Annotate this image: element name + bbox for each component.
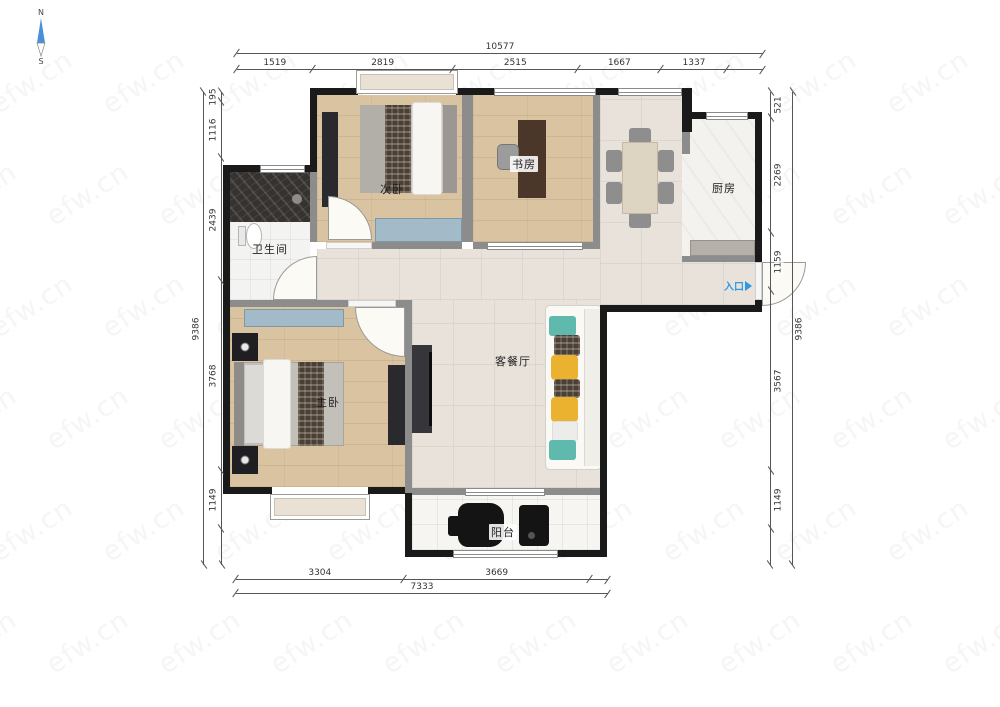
watermark: efw.cn: [0, 381, 23, 457]
dim-bottom-total: 7333: [236, 580, 608, 594]
dim-segment: 521: [770, 92, 786, 118]
dim-left-segments: 1951116243937681149: [206, 92, 222, 565]
watermark: efw.cn: [153, 0, 247, 8]
dim-value: 2515: [503, 59, 528, 68]
watermark: efw.cn: [937, 605, 1000, 681]
watermark: efw.cn: [0, 157, 23, 233]
wall: [462, 95, 473, 242]
dim-segment: 2269: [770, 118, 786, 232]
watermark: efw.cn: [97, 269, 191, 345]
dim-value: 1149: [209, 487, 218, 512]
watermark: efw.cn: [881, 45, 975, 121]
dim-segment: [770, 529, 786, 565]
sofa-pillow-yellow: [551, 355, 578, 380]
dim-value: 3304: [307, 569, 332, 578]
dim-value: 1667: [607, 59, 632, 68]
dresser-blue: [375, 218, 462, 242]
watermark: efw.cn: [265, 605, 359, 681]
watermark: efw.cn: [265, 0, 359, 8]
dining-chair: [606, 150, 622, 172]
bay-window: [270, 494, 370, 520]
wall: [690, 112, 706, 119]
dim-value: 3768: [209, 363, 218, 388]
wall: [682, 88, 692, 132]
window: [260, 165, 305, 173]
dim-segment: 1159: [770, 233, 786, 291]
dim-segment: 1667: [578, 54, 661, 70]
dim-value: 3567: [774, 368, 783, 393]
sofa-pillow-pattern: [554, 379, 580, 398]
bed-headboard: [234, 362, 244, 446]
wall: [310, 88, 358, 95]
watermark: efw.cn: [601, 605, 695, 681]
dim-segment: 1337: [661, 54, 727, 70]
entrance-marker: 入口: [724, 278, 752, 293]
dim-top-segments: 15192819251516671337: [237, 54, 763, 70]
wall: [755, 112, 762, 264]
dining-chair: [629, 212, 651, 228]
dim-segment: 1116: [206, 102, 222, 158]
watermark: efw.cn: [489, 0, 583, 8]
dresser-blue: [244, 309, 344, 327]
watermark: efw.cn: [153, 605, 247, 681]
watermark: efw.cn: [825, 605, 919, 681]
nightstand: [232, 446, 258, 474]
sofa-pillow-teal: [549, 316, 576, 336]
dim-value: 9386: [192, 316, 201, 341]
watermark: efw.cn: [377, 605, 471, 681]
wall: [230, 487, 272, 494]
dim-segment: 10577: [237, 40, 763, 54]
tv-icon: [429, 352, 432, 426]
window: [453, 550, 558, 558]
watermark: efw.cn: [41, 0, 135, 8]
wall: [682, 256, 755, 262]
dim-top-total: 10577: [237, 40, 763, 54]
wall: [456, 88, 494, 95]
bed-blanket: [263, 359, 291, 449]
wall: [596, 88, 618, 95]
dim-value: 10577: [485, 43, 516, 52]
compass-north-label: N: [38, 8, 44, 17]
dim-segment: 3304: [236, 566, 404, 580]
nightstand: [232, 333, 258, 361]
floor-hallway: [317, 249, 600, 300]
washing-machine: [519, 505, 549, 546]
room-label-secondary-bedroom: 次卧: [380, 181, 404, 197]
window: [618, 88, 682, 96]
room-label-bathroom: 卫生间: [252, 241, 288, 257]
wall: [405, 550, 453, 557]
watermark: efw.cn: [489, 605, 583, 681]
bed-blanket: [412, 102, 442, 195]
wall: [305, 165, 317, 172]
dim-value: 1337: [682, 59, 707, 68]
dining-table: [622, 142, 658, 214]
room-label-living-dining: 客餐厅: [495, 353, 531, 369]
dim-segment: 1149: [770, 471, 786, 529]
wall: [405, 493, 412, 557]
watermark: efw.cn: [937, 0, 1000, 8]
compass-south-label: S: [38, 57, 43, 66]
floorplan-canvas: efw.cnefw.cnefw.cnefw.cnefw.cnefw.cnefw.…: [0, 0, 1000, 707]
wall: [412, 488, 465, 495]
sofa-pillow-pattern: [554, 335, 580, 356]
dim-right-segments: 5212269115935671149: [770, 92, 786, 565]
wardrobe: [388, 365, 405, 445]
dim-left-total: 9386: [190, 92, 204, 565]
dim-segment: 7333: [236, 580, 608, 594]
dim-segment: 3567: [770, 291, 786, 471]
dim-segment: [590, 566, 608, 580]
watermark: efw.cn: [881, 493, 975, 569]
room-label-study: 书房: [510, 156, 538, 172]
dim-segment: 2819: [313, 54, 453, 70]
dim-segment: 1149: [206, 471, 222, 529]
compass-needle-icon: [34, 17, 48, 57]
watermark: efw.cn: [937, 157, 1000, 233]
toilet-tank: [238, 226, 246, 246]
washing-machine-door-icon: [528, 532, 535, 539]
watermark: efw.cn: [0, 269, 79, 345]
entrance-arrow-icon: [745, 281, 752, 291]
wall: [310, 88, 317, 172]
dim-right-total: 9386: [792, 92, 806, 565]
sofa-pillow-teal: [549, 440, 576, 460]
watermark: efw.cn: [881, 269, 975, 345]
watermark: efw.cn: [657, 493, 751, 569]
bed-headboard: [443, 105, 457, 193]
dim-segment: 2515: [453, 54, 578, 70]
dim-bottom-segments: 33043669: [236, 566, 608, 580]
watermark: efw.cn: [825, 381, 919, 457]
wall: [310, 172, 317, 242]
watermark: efw.cn: [993, 493, 1000, 569]
shower-drain-icon: [292, 194, 302, 204]
wall: [230, 300, 350, 307]
dim-segment: [727, 54, 763, 70]
wall: [405, 300, 412, 493]
window: [706, 112, 748, 120]
bed-runner: [385, 105, 411, 193]
wall: [545, 488, 600, 495]
watermark: efw.cn: [41, 605, 135, 681]
window: [494, 88, 596, 96]
dim-value: 2269: [774, 163, 783, 188]
dim-value: 7333: [410, 583, 435, 592]
bed-sheet: [360, 105, 385, 193]
sofa-backrest: [584, 309, 600, 466]
dim-value: 2439: [209, 207, 218, 232]
dim-value: 2819: [370, 59, 395, 68]
floor-balcony: [412, 495, 600, 550]
room-label-balcony: 阳台: [489, 524, 517, 540]
dim-segment: 3669: [404, 566, 590, 580]
sofa-pillow-yellow: [551, 397, 578, 422]
watermark: efw.cn: [377, 0, 471, 8]
entrance-label: 入口: [724, 278, 744, 293]
watermark: efw.cn: [937, 381, 1000, 457]
dim-value: 1519: [262, 59, 287, 68]
room-label-master-bedroom: 主卧: [316, 394, 340, 410]
door-threshold: [755, 262, 762, 300]
watermark: efw.cn: [713, 605, 807, 681]
wall: [473, 242, 487, 249]
wall: [600, 305, 762, 312]
wall: [223, 165, 260, 172]
watermark: efw.cn: [0, 605, 23, 681]
dim-value: 1159: [774, 249, 783, 274]
dim-segment: 9386: [190, 92, 204, 565]
balcony-chair-arm: [448, 516, 462, 536]
wall: [583, 242, 600, 249]
dim-value: 9386: [795, 316, 804, 341]
bed-pillows: [244, 364, 264, 444]
dining-chair: [658, 150, 674, 172]
kitchen-counter: [690, 240, 755, 256]
dining-chair: [606, 182, 622, 204]
wall: [372, 242, 462, 249]
door-threshold: [326, 242, 372, 249]
dim-segment: 3768: [206, 281, 222, 471]
sliding-door: [487, 242, 583, 250]
wall: [600, 305, 607, 557]
dining-chair: [658, 182, 674, 204]
dim-segment: [206, 529, 222, 565]
watermark: efw.cn: [41, 157, 135, 233]
room-label-kitchen: 厨房: [712, 180, 736, 196]
sofa-pillow-white: [552, 421, 578, 441]
watermark: efw.cn: [97, 493, 191, 569]
wall: [593, 95, 600, 242]
bay-window: [356, 70, 458, 94]
watermark: efw.cn: [97, 45, 191, 121]
watermark: efw.cn: [825, 0, 919, 8]
wall: [682, 132, 690, 154]
dim-value: 3669: [484, 569, 509, 578]
dim-segment: 1519: [237, 54, 313, 70]
watermark: efw.cn: [0, 0, 23, 8]
sliding-door: [465, 488, 545, 496]
watermark: efw.cn: [41, 381, 135, 457]
watermark: efw.cn: [713, 0, 807, 8]
wall: [558, 550, 607, 557]
watermark: efw.cn: [0, 493, 79, 569]
compass: N S: [30, 8, 52, 66]
watermark: efw.cn: [993, 45, 1000, 121]
watermark: efw.cn: [825, 157, 919, 233]
dim-segment: 9386: [792, 92, 806, 565]
dim-segment: 2439: [206, 158, 222, 281]
watermark: efw.cn: [601, 0, 695, 8]
dim-value: 1116: [209, 117, 218, 142]
door-threshold: [348, 300, 396, 307]
watermark: efw.cn: [993, 269, 1000, 345]
wardrobe: [322, 112, 338, 207]
watermark: efw.cn: [601, 381, 695, 457]
dim-value: 521: [774, 96, 783, 115]
dim-value: 1149: [774, 487, 783, 512]
wall: [223, 165, 230, 494]
